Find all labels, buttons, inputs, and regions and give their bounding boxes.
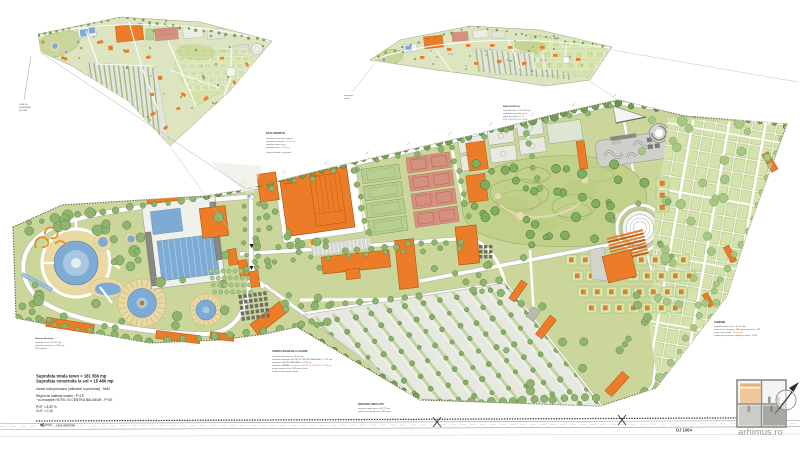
svg-text:DJ 106A: DJ 106A — [676, 428, 693, 433]
svg-text:limita teren: limita teren — [344, 94, 353, 97]
svg-text:INCADRARE: INCADRARE — [19, 106, 31, 109]
svg-text:spre BAZNA: spre BAZNA — [56, 424, 76, 428]
svg-text:numar locuri rulote - 44 parce: numar locuri rulote - 44 parcele — [714, 331, 744, 334]
svg-text:suprafata totala teren = 44 27: suprafata totala teren = 44 275 mp — [358, 407, 391, 410]
svg-text:suprafata teren baza sportiva: suprafata teren baza sportiva — [266, 137, 294, 140]
svg-text:suprafata CAZARE - bungalouri: suprafata CAZARE - bungalouri HOTEL SI C… — [272, 364, 332, 367]
svg-text:IN ZONA: IN ZONA — [19, 109, 28, 112]
svg-text:suprafata CENTRU BALNEAR = 3 2: suprafata CENTRU BALNEAR = 3 260 mp — [272, 361, 312, 364]
svg-text:CAMPING: CAMPING — [714, 321, 725, 324]
svg-text:Obiectiv Municipal: Obiectiv Municipal — [35, 337, 54, 340]
svg-text:PLAN DE: PLAN DE — [19, 103, 28, 106]
svg-text:CENTRU BALNEAR si CAZARE: CENTRU BALNEAR si CAZARE — [272, 350, 308, 353]
svg-text:Suprafata construita la sol =: Suprafata construita la sol = 15 480 mp — [36, 378, 114, 383]
svg-text:numar total persoane (utilizat: numar total persoane (utilizatori si per… — [36, 387, 110, 391]
svg-text:suprafata totala teren = 31 27: suprafata totala teren = 31 270 mp — [714, 325, 747, 328]
svg-text:numar total persoane cazare: numar total persoane cazare — [272, 370, 299, 373]
svg-text:CUT = 0,10: CUT = 0,10 — [36, 409, 53, 413]
svg-text:BAZA SPORTIVA: BAZA SPORTIVA — [503, 105, 520, 108]
svg-text:suprafata construita = 4 210 m: suprafata construita = 4 210 mp — [266, 140, 296, 143]
svg-text:numar locuri camping - 164 n: numar locuri camping - 164 numar persoan… — [714, 328, 761, 331]
svg-text:~cu exceptie HOTEL SI CENTRU B: ~cu exceptie HOTEL SI CENTRU BALNEAR - P… — [36, 398, 113, 402]
svg-text:suprafata construita = 2 950 m: suprafata construita = 2 950 mp — [35, 344, 65, 347]
svg-text:numar locuri de parcare - 640: numar locuri de parcare - 640 locuri — [358, 410, 391, 413]
svg-text:suprafata teren sport: suprafata teren sport — [266, 143, 286, 146]
svg-text:POT existent: POT existent — [35, 347, 47, 350]
svg-text:arhimus.ro: arhimus.ro — [738, 427, 783, 438]
svg-text:suprafata alei = 1 830 mp: suprafata alei = 1 830 mp — [266, 146, 290, 149]
svg-text:studiat: studiat — [344, 97, 350, 100]
svg-text:numar camere hotel - 180 num: numar camere hotel - 180 numar locuri — [272, 367, 308, 370]
svg-text:POT = 8,52 % CUT = 0,10: POT = 8,52 % CUT = 0,10 — [503, 119, 528, 121]
svg-text:suprafata construita la sol: suprafata construita la sol — [503, 112, 527, 115]
svg-text:PARCARE CIRCULATII: PARCARE CIRCULATII — [358, 403, 384, 406]
svg-text:numar total persoane camping s: numar total persoane camping si rulote -… — [714, 334, 758, 337]
svg-text:suprafata construita (HOTEL SI: suprafata construita (HOTEL SI CENTRU BA… — [272, 358, 333, 361]
svg-text:BAZA SPORTIVA: BAZA SPORTIVA — [266, 132, 286, 135]
svg-text:suprafata totala teren = 46 87: suprafata totala teren = 46 872 mp — [272, 355, 305, 358]
svg-text:suprafata teren = 181 556 mp: suprafata teren = 181 556 mp — [503, 109, 531, 112]
svg-text:regim de inaltime P+1E: regim de inaltime P+1E — [503, 115, 525, 118]
svg-text:suprafata teren = 28 077 mp: suprafata teren = 28 077 mp — [35, 341, 62, 344]
svg-text:numar utilizatori si personal: numar utilizatori si personal — [266, 151, 292, 154]
